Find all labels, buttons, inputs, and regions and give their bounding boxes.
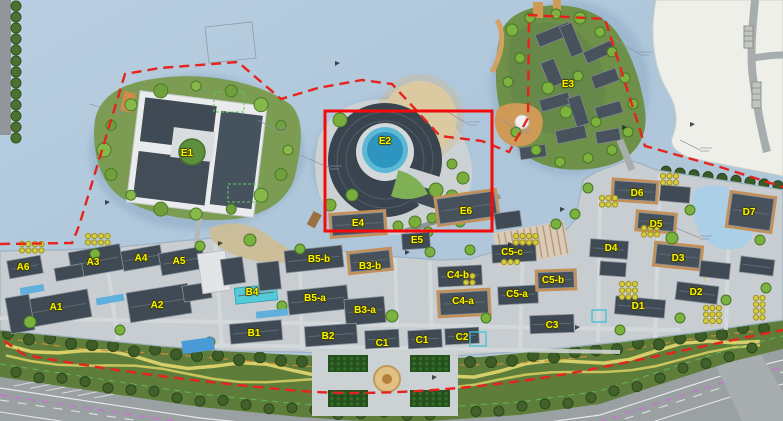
zone-label-c1: C1 (416, 336, 429, 346)
zone-label-e2: E2 (379, 137, 391, 147)
zone-label-e1: E1 (181, 149, 193, 159)
zone-label-d1: D1 (632, 302, 645, 312)
zone-label-d7: D7 (743, 208, 756, 218)
zone-label-d3: D3 (672, 254, 685, 264)
zone-label-a5: A5 (173, 257, 186, 267)
site-plan-map: E1E2E3E4E5E6A1A2A3A4A5A6B1B2B3-aB3-bB4B5… (0, 0, 783, 421)
zone-label-e4: E4 (352, 219, 364, 229)
zone-label-d2: D2 (690, 288, 703, 298)
zone-label-c4-a: C4-a (452, 297, 474, 307)
zone-label-b2: B2 (322, 332, 335, 342)
zone-label-b5-a: B5-a (304, 294, 326, 304)
zone-label-c4-b: C4-b (447, 271, 469, 281)
zone-label-b3-b: B3-b (359, 262, 381, 272)
zone-label-b3-a: B3-a (354, 306, 376, 316)
zone-label-c3: C3 (546, 321, 559, 331)
zone-label-d6: D6 (631, 189, 644, 199)
zone-label-a4: A4 (135, 254, 148, 264)
zone-label-c2: C2 (456, 333, 469, 343)
zone-label-e6: E6 (460, 207, 472, 217)
zone-label-c1: C1 (376, 339, 389, 349)
zone-label-a3: A3 (87, 258, 100, 268)
zone-label-a6: A6 (17, 263, 30, 273)
zone-label-b5-b: B5-b (308, 255, 330, 265)
zone-label-b1: B1 (248, 329, 261, 339)
zone-label-d4: D4 (605, 244, 618, 254)
zone-label-e5: E5 (411, 236, 423, 246)
zone-label-c5-a: C5-a (506, 290, 528, 300)
zone-label-c5-c: C5-c (501, 248, 523, 258)
zone-label-d5: D5 (650, 220, 663, 230)
zone-label-a1: A1 (50, 303, 63, 313)
zone-label-c5-b: C5-b (542, 276, 564, 286)
site-plan-rendering (0, 0, 783, 421)
zone-label-b4: B4 (246, 288, 259, 298)
zone-label-e3: E3 (562, 80, 574, 90)
zone-label-a2: A2 (151, 301, 164, 311)
central-plaza (312, 350, 458, 416)
